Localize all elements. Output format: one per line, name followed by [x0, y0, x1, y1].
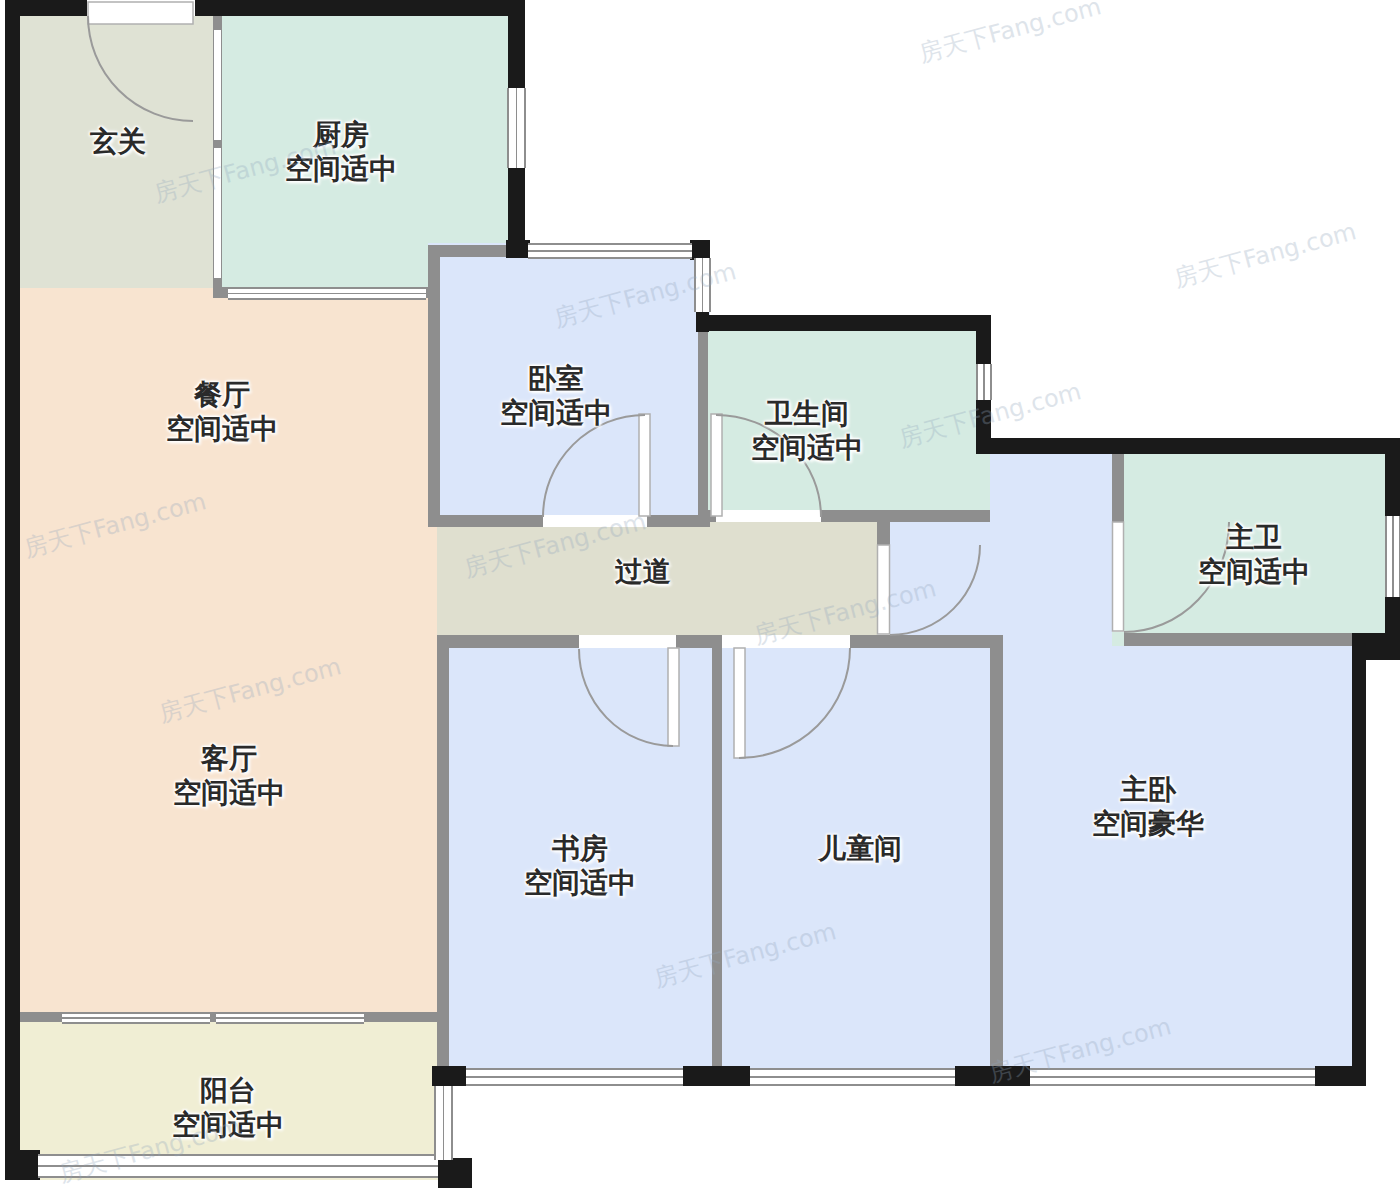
door-arc-study: [579, 649, 673, 746]
door-gap-children: [722, 635, 850, 648]
label-dining-room: 餐厅空间适中: [166, 378, 278, 446]
door-leaf-study: [668, 648, 679, 746]
floor-plan: 玄关 厨房空间适中 餐厅空间适中 卧室空间适中 卫生间空间适中 主卫空间适中 过…: [0, 0, 1400, 1188]
label-bedroom: 卧室空间适中: [500, 362, 612, 430]
label-bathroom: 卫生间空间适中: [751, 397, 863, 465]
label-balcony: 阳台空间适中: [172, 1074, 284, 1142]
label-kitchen: 厨房空间适中: [285, 118, 397, 186]
label-master-bedroom: 主卧空间豪华: [1092, 773, 1204, 841]
door-gap-bedroom: [543, 515, 647, 527]
door-arc-children: [739, 648, 850, 758]
door-gap-study: [579, 635, 676, 648]
label-entry-hall: 玄关: [90, 125, 146, 159]
door-arc-bedroom: [543, 415, 645, 517]
label-corridor: 过道: [615, 555, 671, 589]
label-study: 书房空间适中: [524, 832, 636, 900]
door-arc-master-bedroom: [890, 545, 980, 635]
door-leaf-entry: [88, 2, 193, 24]
door-leaf-master-bath: [1113, 522, 1124, 631]
door-layer: [0, 0, 1400, 1188]
door-leaf-children: [734, 648, 745, 758]
door-leaf-bedroom: [639, 414, 650, 516]
door-leaf-bathroom: [711, 414, 722, 516]
door-gap-bathroom: [716, 510, 821, 522]
label-master-bathroom: 主卫空间适中: [1198, 521, 1310, 589]
label-living-room: 客厅空间适中: [173, 742, 285, 810]
door-leaf-master-bedroom: [878, 545, 890, 634]
label-children-room: 儿童间: [818, 832, 902, 866]
door-arc-entry: [88, 16, 193, 121]
